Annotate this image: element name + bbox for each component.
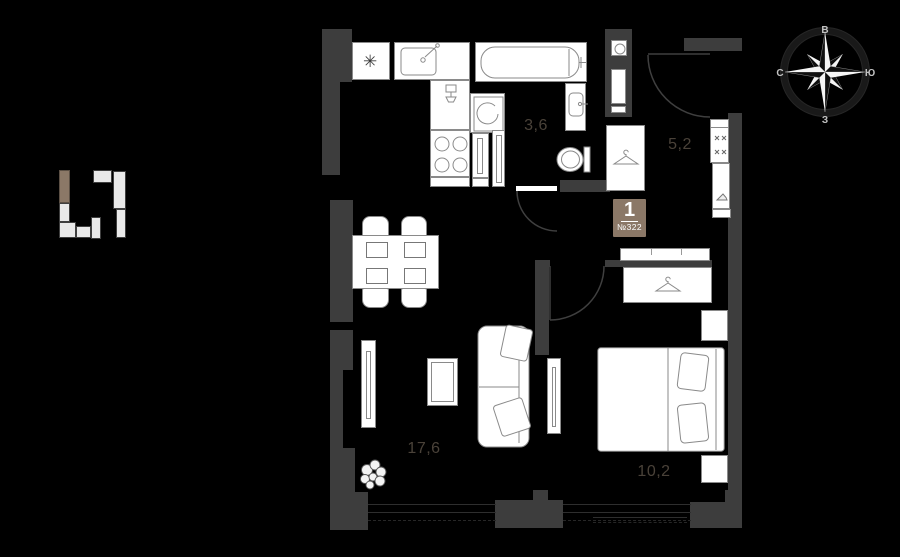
bedroom-door-arc [548, 264, 606, 322]
faucet-icon [431, 81, 471, 131]
hanger-icon [611, 150, 641, 168]
site-plan-building-block [116, 209, 126, 238]
compass-rose: В Ю З С [773, 20, 877, 124]
compass-label-bottom: З [822, 115, 828, 126]
wall [322, 29, 352, 82]
kitchen-sink-counter [394, 42, 470, 80]
window-line [563, 520, 691, 521]
window-line [368, 504, 496, 505]
washing-machine-drum-icon [471, 94, 506, 134]
shelf-tick [651, 249, 652, 255]
vent-duct [611, 40, 627, 56]
room-label-living: 17,6 [398, 440, 450, 458]
dining-chair [401, 288, 427, 308]
apartment-badge[interactable]: 1 №322 [613, 199, 646, 237]
unit-number: №322 [613, 222, 646, 233]
wall [533, 490, 548, 501]
room-label-hallway: 5,2 [658, 136, 702, 154]
site-plan-building-block [91, 217, 101, 239]
toilet-icon [555, 145, 593, 175]
placemat [404, 268, 426, 284]
shaft-panel-small [611, 106, 626, 113]
apartment-number: 1 [621, 199, 638, 222]
kitchen-tall-cabinet [492, 130, 505, 187]
tv-slot [552, 367, 556, 427]
cabinet-slot [477, 138, 483, 174]
room-label-bedroom: 10,2 [628, 463, 680, 481]
floorplan-viewer: В Ю З С ✳ [0, 0, 900, 557]
site-plan-building-block [113, 171, 126, 209]
hallway-wardrobe [606, 125, 645, 191]
wall [330, 330, 353, 370]
window-line [593, 517, 687, 518]
living-tv-stand [361, 340, 376, 428]
kitchen-counter-strip [430, 177, 470, 187]
bedroom-tv-stand [547, 358, 561, 434]
wall [690, 502, 742, 528]
shaft-panel [611, 69, 626, 104]
room-label-bathroom: 3,6 [516, 117, 556, 135]
compass-label-right: Ю [865, 68, 875, 79]
wall [495, 500, 563, 528]
washbasin [565, 83, 586, 131]
kitchen-cabinet-strip [472, 178, 489, 187]
window-line [593, 522, 687, 523]
double-bed [597, 347, 725, 452]
bedroom-wardrobe [623, 267, 712, 303]
kitchen-sink-icon [395, 43, 471, 81]
wall [684, 38, 742, 51]
wall [535, 266, 549, 355]
compass-label-top: В [821, 25, 828, 36]
vent-circle-icon [612, 41, 628, 57]
dining-chair [401, 216, 427, 237]
window-line [368, 512, 496, 513]
hanger-icon [653, 277, 683, 295]
site-plan-building-block [76, 226, 91, 238]
plant-icon [355, 456, 391, 492]
wall [605, 260, 712, 267]
dining-chair [362, 288, 389, 308]
site-plan-building-block [93, 170, 112, 183]
window-line [563, 504, 691, 505]
kitchen-tall-cabinet [472, 133, 489, 178]
stove-burners-icon [431, 131, 471, 178]
coffee-table [427, 358, 458, 406]
shelf-tick [681, 249, 682, 255]
bathtub-icon [476, 43, 588, 83]
wall [330, 200, 353, 322]
washing-machine [470, 93, 505, 133]
bathtub [475, 42, 587, 82]
site-plan-minimap [0, 0, 140, 260]
hallway-mirror-cabinet [710, 127, 729, 163]
wall [330, 492, 368, 530]
wall [322, 82, 340, 175]
coffee-table-top [431, 362, 454, 402]
nightstand [701, 455, 728, 483]
placemat [404, 242, 426, 258]
floor-strip-minimap [0, 300, 290, 410]
stove [430, 130, 470, 177]
washbasin-icon [566, 84, 587, 132]
bathroom-door-arc [515, 189, 559, 233]
placemat [366, 242, 388, 258]
shoe-cabinet [712, 163, 730, 209]
x-marks-icon [711, 128, 730, 164]
wall [330, 370, 343, 448]
site-plan-highlighted-building[interactable] [59, 170, 70, 203]
window-line [563, 512, 691, 513]
freezer-icon: ✳ [363, 53, 377, 70]
dining-chair [362, 216, 389, 237]
shoe-icon [713, 164, 731, 210]
cabinet-slot [496, 135, 502, 183]
tv-slot [366, 351, 371, 419]
hallway-cabinet-strip [712, 209, 731, 218]
site-plan-building-block [59, 222, 76, 238]
entrance-door-arc [646, 52, 712, 119]
site-plan-building-block [59, 203, 70, 222]
nightstand [701, 310, 728, 341]
bedroom-shelf [620, 248, 710, 261]
placemat [366, 268, 388, 284]
dining-table [352, 235, 439, 289]
compass-label-left: С [776, 68, 783, 79]
wall [560, 180, 610, 192]
fridge: ✳ [352, 42, 390, 80]
window-line [368, 520, 496, 521]
sofa [477, 325, 537, 449]
kitchen-counter [430, 80, 470, 130]
